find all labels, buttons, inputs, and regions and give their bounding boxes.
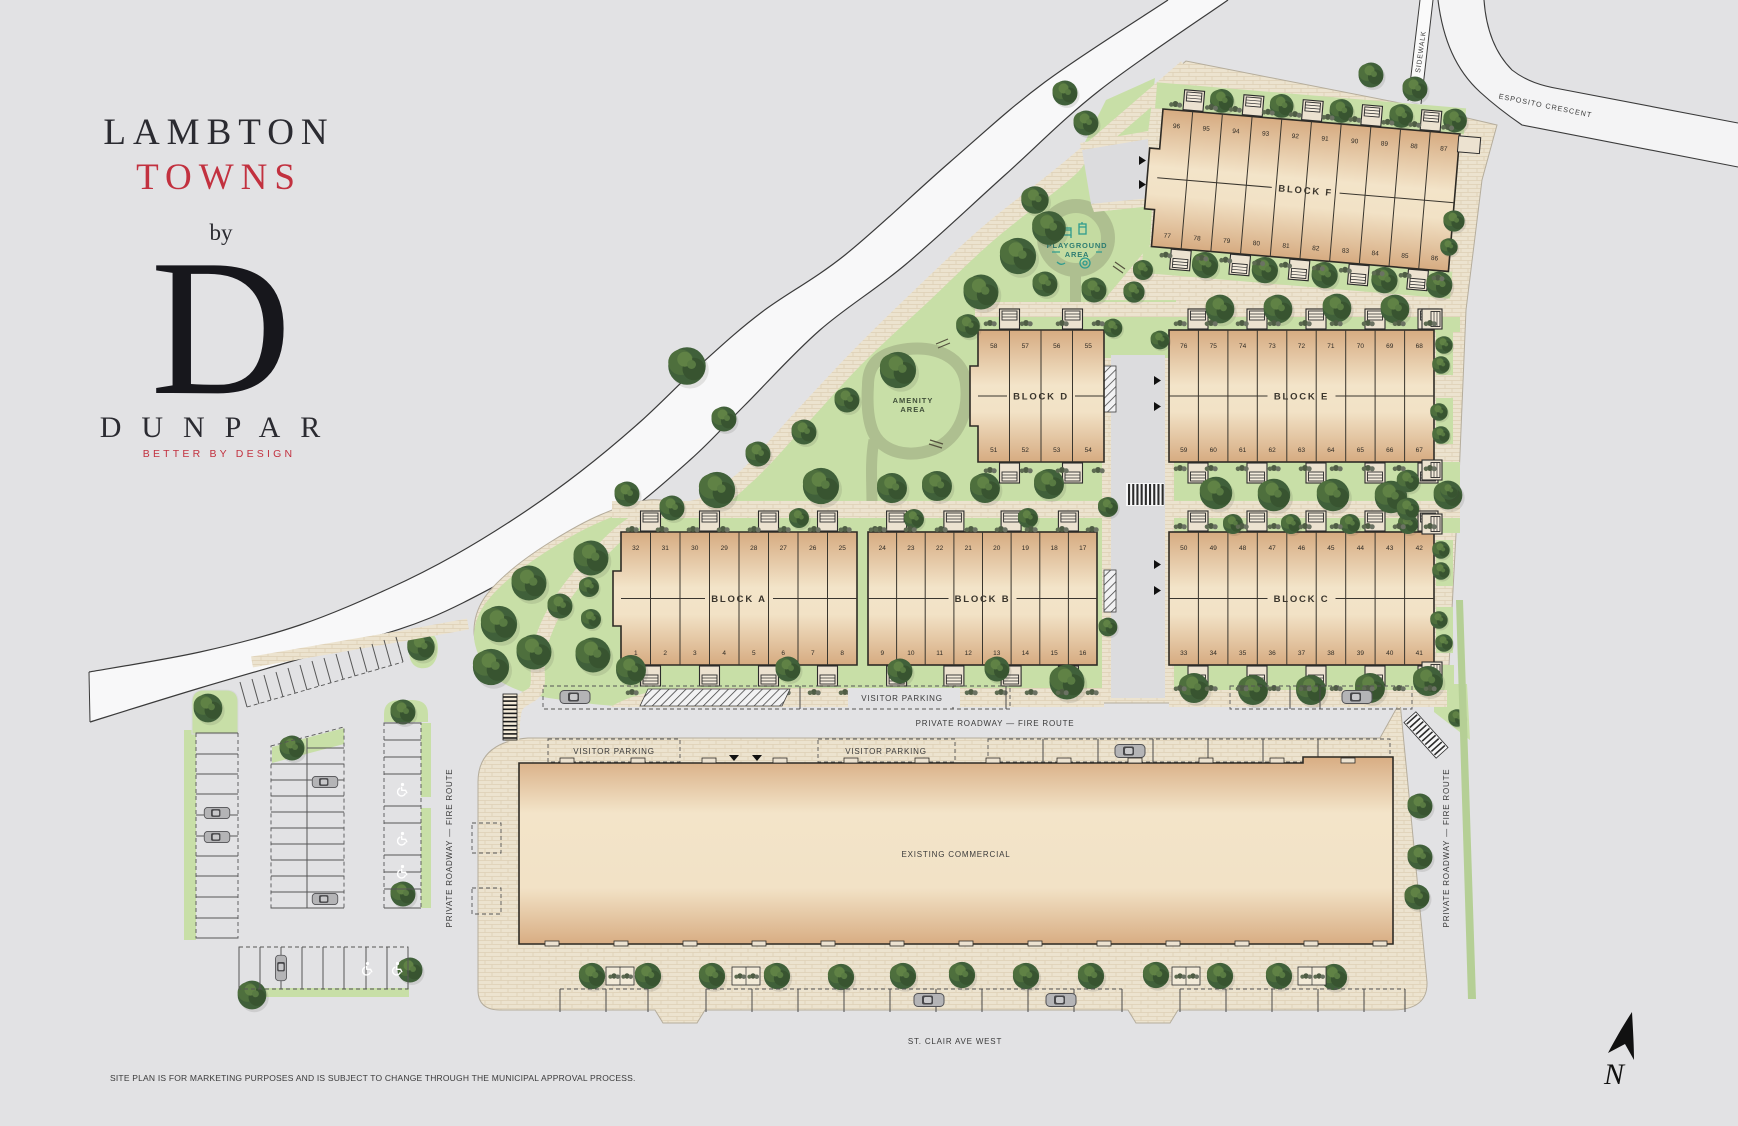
svg-text:89: 89: [1380, 140, 1388, 148]
svg-text:10: 10: [907, 650, 915, 657]
svg-text:5: 5: [752, 650, 756, 657]
svg-text:52: 52: [1022, 447, 1030, 454]
svg-text:D: D: [151, 220, 292, 436]
svg-text:31: 31: [662, 545, 670, 552]
svg-text:51: 51: [990, 447, 998, 454]
svg-text:42: 42: [1416, 545, 1424, 552]
svg-text:33: 33: [1180, 650, 1188, 657]
svg-text:12: 12: [965, 650, 973, 657]
svg-text:27: 27: [780, 545, 788, 552]
svg-text:85: 85: [1401, 252, 1409, 260]
svg-text:36: 36: [1268, 650, 1276, 657]
svg-text:26: 26: [809, 545, 817, 552]
svg-text:62: 62: [1268, 447, 1276, 454]
svg-text:28: 28: [750, 545, 758, 552]
svg-text:35: 35: [1239, 650, 1247, 657]
svg-text:64: 64: [1327, 447, 1335, 454]
svg-text:48: 48: [1239, 545, 1247, 552]
svg-text:87: 87: [1440, 145, 1448, 153]
svg-text:EXISTING COMMERCIAL: EXISTING COMMERCIAL: [902, 850, 1011, 859]
svg-text:56: 56: [1053, 343, 1061, 350]
svg-text:84: 84: [1371, 250, 1379, 258]
svg-text:77: 77: [1163, 233, 1171, 241]
svg-text:50: 50: [1180, 545, 1188, 552]
svg-text:17: 17: [1079, 545, 1087, 552]
svg-text:TOWNS: TOWNS: [136, 157, 302, 198]
svg-text:AREA: AREA: [1065, 250, 1089, 259]
svg-text:25: 25: [839, 545, 847, 552]
svg-text:66: 66: [1386, 447, 1394, 454]
svg-text:75: 75: [1210, 343, 1218, 350]
svg-text:49: 49: [1210, 545, 1218, 552]
svg-text:22: 22: [936, 545, 944, 552]
svg-text:SITE PLAN IS FOR MARKETING PUR: SITE PLAN IS FOR MARKETING PURPOSES AND …: [110, 1073, 636, 1083]
svg-text:PRIVATE ROADWAY — FIRE ROUTE: PRIVATE ROADWAY — FIRE ROUTE: [445, 769, 454, 928]
svg-text:32: 32: [632, 545, 640, 552]
svg-text:79: 79: [1223, 237, 1231, 245]
svg-text:VISITOR PARKING: VISITOR PARKING: [845, 747, 927, 756]
svg-text:20: 20: [993, 545, 1001, 552]
svg-text:46: 46: [1298, 545, 1306, 552]
svg-text:81: 81: [1282, 242, 1290, 250]
svg-text:53: 53: [1053, 447, 1061, 454]
svg-text:70: 70: [1357, 343, 1365, 350]
svg-text:ST. CLAIR AVE WEST: ST. CLAIR AVE WEST: [908, 1037, 1002, 1046]
svg-text:18: 18: [1050, 545, 1058, 552]
svg-text:72: 72: [1298, 343, 1306, 350]
svg-text:47: 47: [1268, 545, 1276, 552]
svg-text:24: 24: [879, 545, 887, 552]
svg-text:VISITOR PARKING: VISITOR PARKING: [861, 694, 943, 703]
svg-text:13: 13: [993, 650, 1001, 657]
svg-text:93: 93: [1262, 130, 1270, 138]
svg-text:73: 73: [1268, 343, 1276, 350]
svg-text:91: 91: [1321, 135, 1329, 143]
svg-text:DUNPAR: DUNPAR: [100, 411, 341, 444]
svg-text:83: 83: [1342, 247, 1350, 255]
svg-text:43: 43: [1386, 545, 1394, 552]
svg-text:63: 63: [1298, 447, 1306, 454]
svg-text:34: 34: [1210, 650, 1218, 657]
svg-text:37: 37: [1298, 650, 1306, 657]
svg-text:15: 15: [1050, 650, 1058, 657]
svg-text:61: 61: [1239, 447, 1247, 454]
svg-text:92: 92: [1291, 133, 1299, 141]
svg-text:PRIVATE ROADWAY — FIRE ROUTE: PRIVATE ROADWAY — FIRE ROUTE: [1442, 769, 1451, 928]
svg-text:94: 94: [1232, 128, 1240, 136]
svg-text:82: 82: [1312, 245, 1320, 253]
svg-text:58: 58: [990, 343, 998, 350]
svg-text:57: 57: [1022, 343, 1030, 350]
svg-text:BLOCK C: BLOCK C: [1274, 594, 1330, 605]
svg-text:21: 21: [965, 545, 973, 552]
svg-text:LAMBTON: LAMBTON: [103, 112, 334, 153]
svg-text:3: 3: [693, 650, 697, 657]
svg-text:80: 80: [1252, 240, 1260, 248]
svg-text:29: 29: [721, 545, 729, 552]
svg-text:59: 59: [1180, 447, 1188, 454]
svg-text:90: 90: [1351, 138, 1359, 146]
svg-text:14: 14: [1022, 650, 1030, 657]
svg-text:VISITOR PARKING: VISITOR PARKING: [573, 747, 655, 756]
svg-text:30: 30: [691, 545, 699, 552]
svg-text:40: 40: [1386, 650, 1394, 657]
svg-text:4: 4: [722, 650, 726, 657]
svg-text:45: 45: [1327, 545, 1335, 552]
svg-text:PRIVATE ROADWAY — FIRE ROUTE: PRIVATE ROADWAY — FIRE ROUTE: [916, 719, 1075, 728]
svg-text:BLOCK B: BLOCK B: [955, 594, 1011, 605]
svg-text:BLOCK E: BLOCK E: [1274, 392, 1329, 403]
svg-text:8: 8: [840, 650, 844, 657]
svg-text:55: 55: [1085, 343, 1093, 350]
svg-text:9: 9: [880, 650, 884, 657]
svg-text:71: 71: [1327, 343, 1335, 350]
svg-text:N: N: [1603, 1058, 1626, 1091]
svg-text:BETTER BY DESIGN: BETTER BY DESIGN: [143, 448, 296, 460]
svg-text:41: 41: [1416, 650, 1424, 657]
svg-text:39: 39: [1357, 650, 1365, 657]
svg-text:95: 95: [1202, 125, 1210, 133]
svg-text:96: 96: [1173, 123, 1181, 131]
svg-text:AMENITY: AMENITY: [893, 396, 934, 405]
svg-text:68: 68: [1416, 343, 1424, 350]
svg-text:78: 78: [1193, 235, 1201, 243]
svg-text:38: 38: [1327, 650, 1335, 657]
svg-text:86: 86: [1431, 255, 1439, 263]
svg-text:76: 76: [1180, 343, 1188, 350]
svg-text:44: 44: [1357, 545, 1365, 552]
svg-text:60: 60: [1210, 447, 1218, 454]
svg-text:6: 6: [781, 650, 785, 657]
svg-text:7: 7: [811, 650, 815, 657]
svg-text:19: 19: [1022, 545, 1030, 552]
svg-text:54: 54: [1085, 447, 1093, 454]
svg-text:67: 67: [1416, 447, 1424, 454]
svg-text:AREA: AREA: [900, 405, 925, 414]
svg-text:88: 88: [1410, 143, 1418, 151]
svg-text:74: 74: [1239, 343, 1247, 350]
svg-text:23: 23: [907, 545, 915, 552]
svg-text:69: 69: [1386, 343, 1394, 350]
svg-text:BLOCK A: BLOCK A: [711, 594, 767, 605]
svg-text:65: 65: [1357, 447, 1365, 454]
svg-text:2: 2: [663, 650, 667, 657]
svg-text:11: 11: [936, 650, 943, 657]
svg-text:BLOCK D: BLOCK D: [1013, 392, 1069, 403]
svg-text:16: 16: [1079, 650, 1087, 657]
